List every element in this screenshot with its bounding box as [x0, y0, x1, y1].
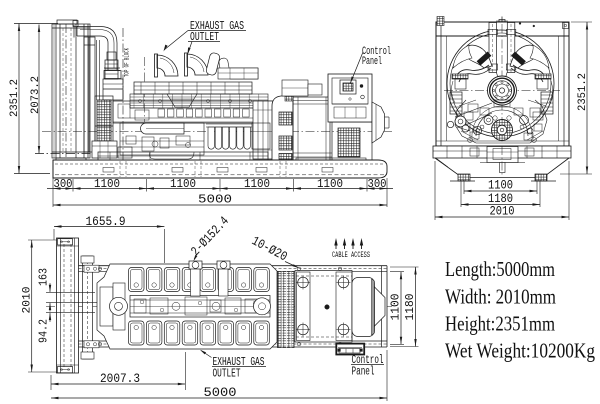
svg-text:1100: 1100 — [94, 177, 120, 191]
svg-text:2010: 2010 — [490, 205, 515, 219]
svg-text:TOP OF BLOCK: TOP OF BLOCK — [124, 48, 131, 77]
svg-text:1100: 1100 — [170, 177, 196, 191]
svg-text:5000: 5000 — [198, 193, 232, 207]
svg-text:OUTLET: OUTLET — [190, 30, 219, 44]
svg-text:Panel: Panel — [352, 366, 375, 379]
svg-text:OUTLET: OUTLET — [213, 368, 241, 381]
svg-text:1100: 1100 — [244, 177, 270, 191]
svg-text:Length:5000mm: Length:5000mm — [445, 257, 555, 281]
svg-text:5000: 5000 — [204, 386, 237, 400]
svg-text:1655.9: 1655.9 — [86, 215, 126, 229]
svg-text:1100: 1100 — [389, 294, 403, 321]
svg-text:Wet Weight:10200Kg: Wet Weight:10200Kg — [445, 339, 595, 363]
svg-text:2073.2: 2073.2 — [30, 76, 42, 114]
svg-text:300: 300 — [54, 177, 73, 191]
svg-text:2351.2: 2351.2 — [577, 73, 589, 111]
svg-text:Height:2351mm: Height:2351mm — [445, 312, 555, 336]
svg-text:CABLE ACCESS: CABLE ACCESS — [332, 250, 370, 260]
svg-text:2007.3: 2007.3 — [100, 372, 140, 386]
svg-text:300: 300 — [368, 177, 387, 191]
svg-text:2351.2: 2351.2 — [9, 79, 21, 117]
svg-text:94.2: 94.2 — [37, 319, 51, 343]
svg-text:2010: 2010 — [22, 287, 34, 314]
svg-text:1180: 1180 — [403, 294, 417, 321]
svg-text:163: 163 — [37, 268, 51, 286]
svg-text:Width: 2010mm: Width: 2010mm — [445, 285, 556, 309]
svg-text:1100: 1100 — [317, 177, 343, 191]
svg-text:Panel: Panel — [362, 56, 382, 68]
svg-text:1100: 1100 — [488, 179, 513, 193]
